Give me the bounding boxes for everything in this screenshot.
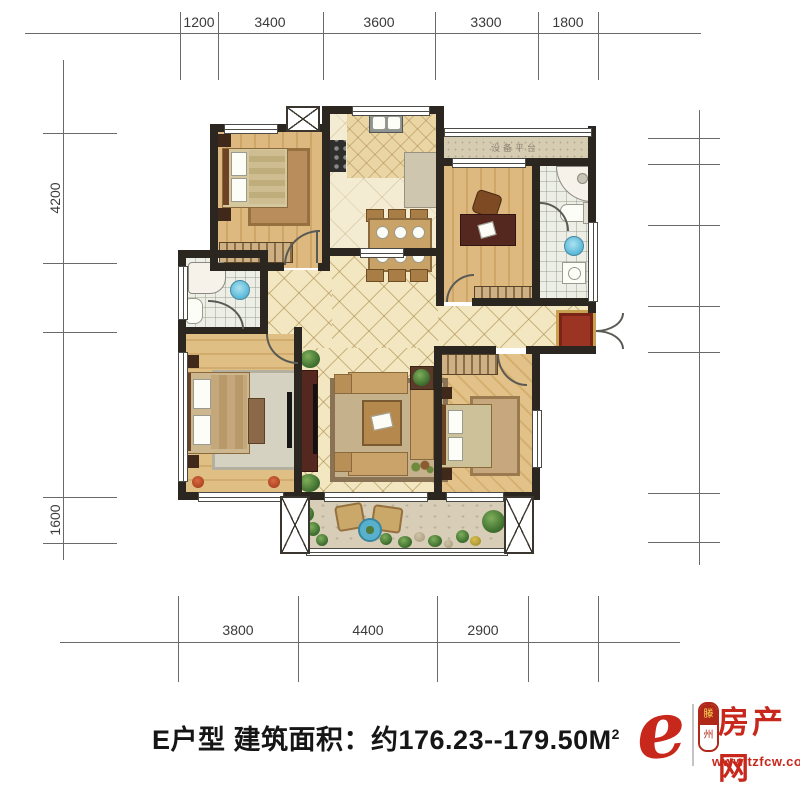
sofa-right (410, 388, 434, 460)
wall (400, 248, 436, 256)
plant (398, 536, 412, 548)
balcony-slider (324, 492, 428, 502)
bathroom2-window (178, 266, 188, 320)
pillow (193, 415, 211, 445)
wall (434, 346, 496, 354)
kitchen-window (352, 106, 430, 116)
plant-pot (410, 366, 434, 390)
pillow (193, 379, 211, 409)
wall (322, 106, 330, 271)
dining-chair (388, 269, 406, 282)
shower-head (577, 173, 588, 184)
kitchen-stove (328, 140, 346, 172)
kitchen-fridge (404, 152, 438, 208)
floor-plan: 设备平台 (0, 0, 800, 782)
plan-caption: E户型 建筑面积：约176.23--179.50M2 (152, 718, 620, 757)
sink-basin (372, 116, 386, 130)
study-window (452, 158, 526, 168)
plant (380, 533, 392, 545)
bedroom3-bed (440, 404, 492, 468)
plant (413, 369, 430, 386)
bathroom-right-window (588, 222, 598, 302)
plant (456, 530, 469, 543)
master-bed (184, 372, 250, 454)
nightstand (216, 134, 231, 147)
flowers (408, 458, 434, 476)
balcony-rail (306, 548, 508, 556)
site-name: 房产网 (718, 700, 800, 792)
rock (414, 532, 425, 542)
wall (322, 248, 362, 256)
plant (300, 350, 320, 368)
dining-chair (366, 269, 384, 282)
site-logo: e 滕 州 房产网 www.tzfcw.com.cn (636, 694, 800, 780)
flower-pot (268, 476, 280, 488)
site-url: www.tzfcw.com.cn (712, 754, 800, 769)
balcony-table (358, 518, 382, 542)
flue-icon (286, 106, 320, 132)
entry-door-lower (596, 330, 624, 349)
armchair (334, 452, 352, 472)
washer-door (568, 267, 581, 280)
bedroom1-window (224, 124, 278, 134)
nightstand (216, 208, 231, 221)
sofa-top (348, 372, 408, 394)
equipment-platform-label: 设备平台 (450, 141, 580, 154)
bathroom2-sink-blue (230, 280, 250, 300)
flower-pot (192, 476, 204, 488)
wall (588, 306, 596, 313)
wall (588, 346, 596, 354)
bathroom-sink-blue (564, 236, 584, 256)
bedroom1-door-leaf (316, 230, 318, 263)
wall (426, 492, 442, 500)
blanket (211, 375, 247, 449)
master-window (178, 352, 188, 482)
wall (434, 346, 442, 500)
badge-top-char: 滕 (700, 704, 717, 725)
bush (482, 510, 505, 533)
blanket (249, 150, 285, 204)
caption-text: E户型 建筑面积：约176.23--179.50M (152, 725, 612, 755)
tea-set (371, 412, 394, 431)
pillow (448, 410, 463, 434)
plant (428, 535, 442, 547)
logo-divider (692, 704, 694, 766)
bedroom3-wardrobe (440, 354, 498, 375)
study-desk (460, 214, 516, 246)
plate (376, 226, 389, 239)
wall (260, 250, 268, 334)
pillow (448, 437, 463, 461)
logo-script-e: e (632, 694, 689, 769)
paper (477, 221, 496, 239)
wall (472, 298, 596, 306)
toilet (186, 298, 203, 324)
master-tv (287, 392, 292, 448)
platform-rail-window (444, 128, 592, 137)
logo-city-badge: 滕 州 (698, 702, 719, 752)
bedroom3-window (532, 410, 542, 468)
caption-superscript: 2 (612, 726, 620, 742)
plate (412, 226, 425, 239)
tv (313, 384, 317, 454)
pillow (231, 178, 247, 202)
wall (532, 158, 540, 306)
sink-basin (387, 116, 401, 130)
plant (316, 534, 328, 546)
bench (248, 398, 265, 444)
wall (210, 124, 218, 271)
master-bottom-window (198, 492, 284, 502)
bedroom3-bottom-window (446, 492, 504, 502)
pillow (231, 152, 247, 176)
balcony-column-right (504, 496, 534, 554)
dining-table (368, 218, 432, 272)
plant-yellow (470, 536, 481, 546)
dining-chair (410, 269, 428, 282)
badge-bottom-char: 州 (700, 725, 717, 746)
bedroom1-bed (222, 148, 288, 208)
armchair (334, 374, 352, 394)
plate (394, 226, 407, 239)
entry-door-upper (596, 313, 624, 332)
kitchen-sink (369, 113, 403, 133)
kitchen-slider-door (360, 248, 404, 258)
wall (436, 106, 444, 306)
sofa-bottom (348, 452, 408, 476)
wall (210, 263, 284, 271)
rock (444, 540, 453, 548)
headboard (223, 149, 229, 205)
wall (178, 250, 268, 258)
coffee-table (362, 400, 402, 446)
washing-machine (562, 262, 586, 284)
balcony-column-left (280, 496, 310, 554)
